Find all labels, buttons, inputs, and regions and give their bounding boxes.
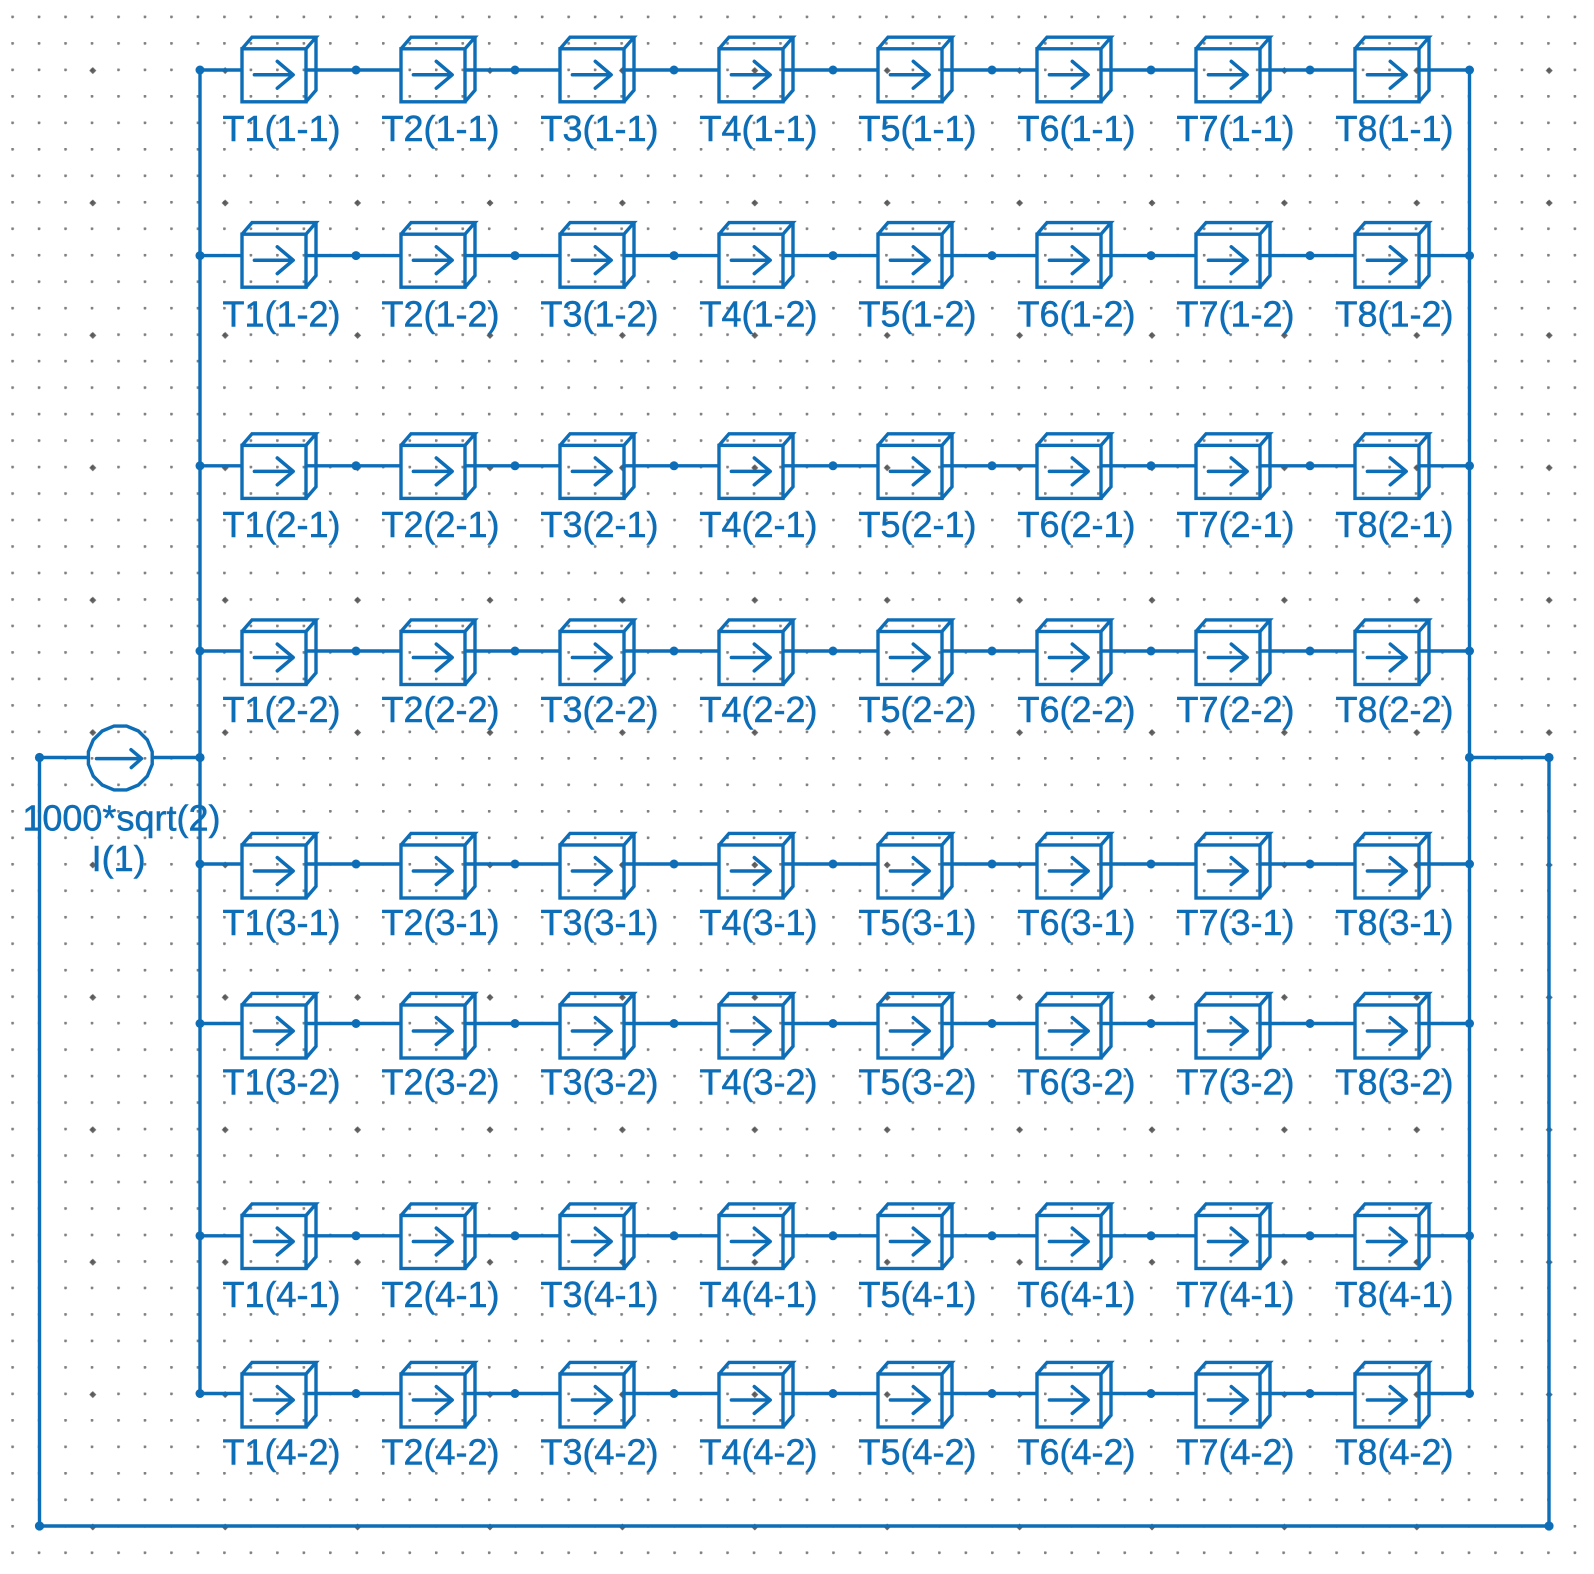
svg-text:T8(4-1): T8(4-1): [1335, 1274, 1453, 1315]
svg-text:T6(1-2): T6(1-2): [1017, 294, 1135, 335]
svg-text:T4(2-2): T4(2-2): [699, 689, 817, 730]
svg-text:T3(2-2): T3(2-2): [540, 689, 658, 730]
svg-text:T5(3-1): T5(3-1): [858, 902, 976, 943]
svg-text:T6(4-2): T6(4-2): [1017, 1432, 1135, 1473]
svg-text:T6(3-2): T6(3-2): [1017, 1062, 1135, 1103]
svg-text:T3(1-1): T3(1-1): [540, 108, 658, 149]
svg-text:T8(3-2): T8(3-2): [1335, 1062, 1453, 1103]
svg-text:T6(1-1): T6(1-1): [1017, 108, 1135, 149]
svg-text:I(1): I(1): [92, 838, 146, 879]
svg-text:T1(2-1): T1(2-1): [222, 504, 340, 545]
svg-text:T1(3-1): T1(3-1): [222, 902, 340, 943]
svg-text:T3(4-2): T3(4-2): [540, 1432, 658, 1473]
svg-text:T6(4-1): T6(4-1): [1017, 1274, 1135, 1315]
svg-text:T5(2-2): T5(2-2): [858, 689, 976, 730]
svg-text:T1(2-2): T1(2-2): [222, 689, 340, 730]
svg-text:T1(3-2): T1(3-2): [222, 1062, 340, 1103]
svg-text:T4(1-2): T4(1-2): [699, 294, 817, 335]
svg-text:T7(1-2): T7(1-2): [1176, 294, 1294, 335]
svg-text:T5(4-2): T5(4-2): [858, 1432, 976, 1473]
svg-text:T7(4-1): T7(4-1): [1176, 1274, 1294, 1315]
svg-text:T1(4-1): T1(4-1): [222, 1274, 340, 1315]
svg-text:T7(3-2): T7(3-2): [1176, 1062, 1294, 1103]
svg-text:T8(3-1): T8(3-1): [1335, 902, 1453, 943]
svg-text:T4(4-1): T4(4-1): [699, 1274, 817, 1315]
svg-text:T4(2-1): T4(2-1): [699, 504, 817, 545]
svg-text:T2(2-1): T2(2-1): [381, 504, 499, 545]
svg-text:1000*sqrt(2): 1000*sqrt(2): [22, 798, 220, 839]
svg-text:T6(3-1): T6(3-1): [1017, 902, 1135, 943]
svg-text:T2(2-2): T2(2-2): [381, 689, 499, 730]
svg-text:T7(2-1): T7(2-1): [1176, 504, 1294, 545]
svg-text:T5(2-1): T5(2-1): [858, 504, 976, 545]
svg-text:T8(2-2): T8(2-2): [1335, 689, 1453, 730]
svg-text:T2(3-2): T2(3-2): [381, 1062, 499, 1103]
svg-text:T2(1-2): T2(1-2): [381, 294, 499, 335]
svg-text:T2(4-1): T2(4-1): [381, 1274, 499, 1315]
svg-text:T8(1-2): T8(1-2): [1335, 294, 1453, 335]
svg-text:T2(3-1): T2(3-1): [381, 902, 499, 943]
svg-text:T4(3-2): T4(3-2): [699, 1062, 817, 1103]
svg-text:T3(4-1): T3(4-1): [540, 1274, 658, 1315]
svg-text:T3(2-1): T3(2-1): [540, 504, 658, 545]
svg-text:T1(1-1): T1(1-1): [222, 108, 340, 149]
svg-text:T2(4-2): T2(4-2): [381, 1432, 499, 1473]
svg-text:T4(1-1): T4(1-1): [699, 108, 817, 149]
svg-text:T3(1-2): T3(1-2): [540, 294, 658, 335]
svg-text:T7(3-1): T7(3-1): [1176, 902, 1294, 943]
svg-text:T4(4-2): T4(4-2): [699, 1432, 817, 1473]
svg-text:T7(2-2): T7(2-2): [1176, 689, 1294, 730]
svg-text:T8(2-1): T8(2-1): [1335, 504, 1453, 545]
svg-text:T8(4-2): T8(4-2): [1335, 1432, 1453, 1473]
svg-text:T5(3-2): T5(3-2): [858, 1062, 976, 1103]
svg-text:T3(3-2): T3(3-2): [540, 1062, 658, 1103]
svg-text:T5(1-2): T5(1-2): [858, 294, 976, 335]
svg-text:T7(4-2): T7(4-2): [1176, 1432, 1294, 1473]
svg-text:T7(1-1): T7(1-1): [1176, 108, 1294, 149]
svg-text:T3(3-1): T3(3-1): [540, 902, 658, 943]
svg-text:T1(1-2): T1(1-2): [222, 294, 340, 335]
svg-text:T8(1-1): T8(1-1): [1335, 108, 1453, 149]
svg-text:T1(4-2): T1(4-2): [222, 1432, 340, 1473]
svg-text:T6(2-1): T6(2-1): [1017, 504, 1135, 545]
svg-text:T6(2-2): T6(2-2): [1017, 689, 1135, 730]
svg-text:T5(1-1): T5(1-1): [858, 108, 976, 149]
svg-text:T5(4-1): T5(4-1): [858, 1274, 976, 1315]
svg-text:T2(1-1): T2(1-1): [381, 108, 499, 149]
svg-text:T4(3-1): T4(3-1): [699, 902, 817, 943]
